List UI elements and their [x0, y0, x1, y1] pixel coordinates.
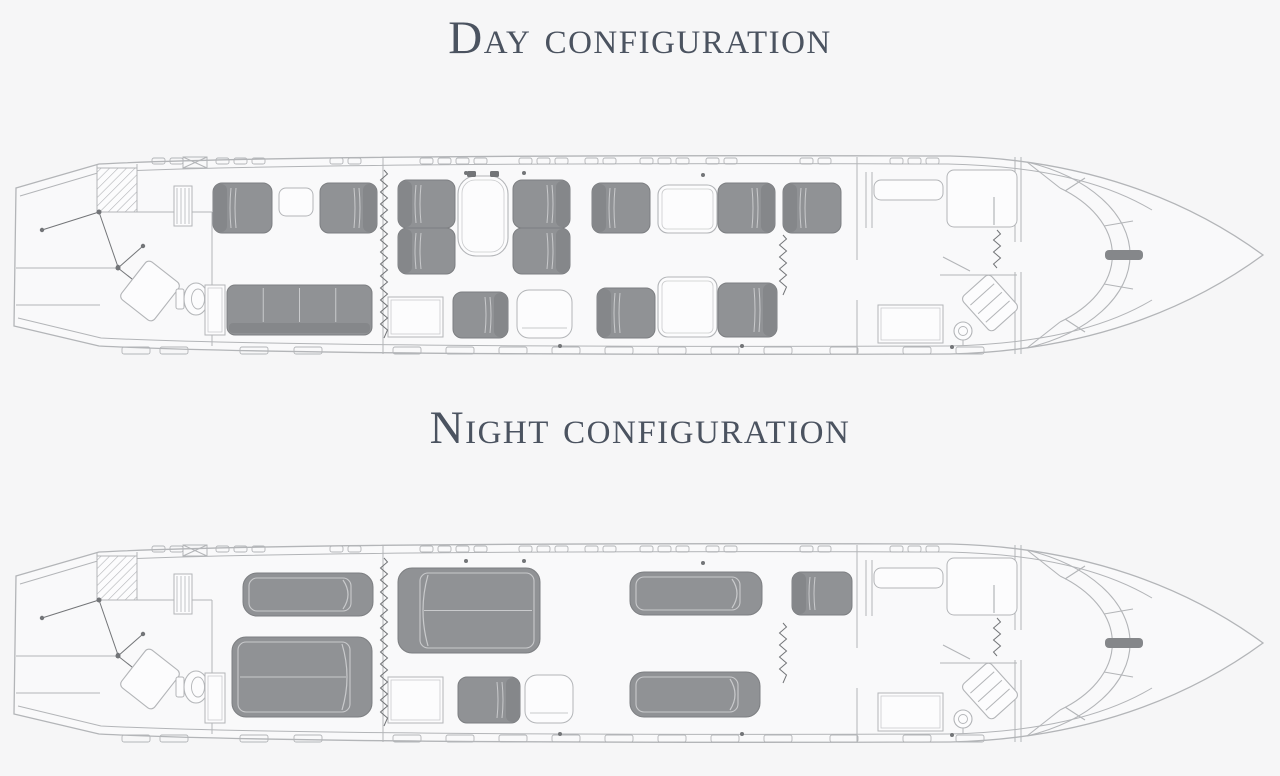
passenger-seat	[792, 572, 852, 615]
table	[658, 277, 717, 337]
passenger-seat	[718, 283, 777, 337]
cabinet	[388, 677, 443, 723]
storage-rack	[174, 574, 192, 614]
cabinet	[205, 285, 225, 335]
ottoman-outline	[525, 675, 573, 723]
table	[658, 185, 717, 233]
floorplan-page: Day configuration Night configuration	[0, 8, 1280, 776]
passenger-seat	[592, 183, 650, 233]
passenger-seat	[783, 183, 841, 233]
day-floorplan	[0, 150, 1280, 365]
wardrobe-hatch	[97, 556, 137, 600]
passenger-seat	[597, 288, 655, 338]
table	[458, 171, 508, 256]
day-configuration-title: Day configuration	[0, 8, 1280, 68]
bed	[232, 637, 372, 717]
cabinet	[878, 305, 943, 343]
divan-sofa	[227, 285, 372, 335]
passenger-seat	[453, 292, 508, 338]
bed	[630, 572, 762, 615]
bed	[398, 568, 540, 653]
galley-counter	[874, 180, 943, 200]
passenger-seat	[398, 228, 455, 274]
galley-counter	[874, 568, 943, 588]
passenger-seat	[398, 180, 455, 228]
galley-counter	[947, 170, 1017, 227]
cabinet	[388, 297, 443, 337]
ottoman-outline	[517, 290, 572, 338]
cabinet	[205, 673, 225, 723]
passenger-seat	[320, 183, 377, 233]
cabinet	[878, 693, 943, 731]
night-configuration-title: Night configuration	[0, 398, 1280, 458]
galley-counter	[947, 558, 1017, 615]
passenger-seat	[213, 183, 272, 233]
passenger-seat	[513, 180, 570, 228]
bed	[243, 573, 373, 616]
wardrobe-hatch	[97, 168, 137, 212]
storage-rack	[174, 186, 192, 226]
passenger-seat	[718, 183, 775, 233]
passenger-seat	[513, 228, 570, 274]
galley-counter	[279, 188, 313, 216]
bed	[630, 672, 760, 717]
night-floorplan	[0, 538, 1280, 753]
passenger-seat	[458, 677, 520, 723]
